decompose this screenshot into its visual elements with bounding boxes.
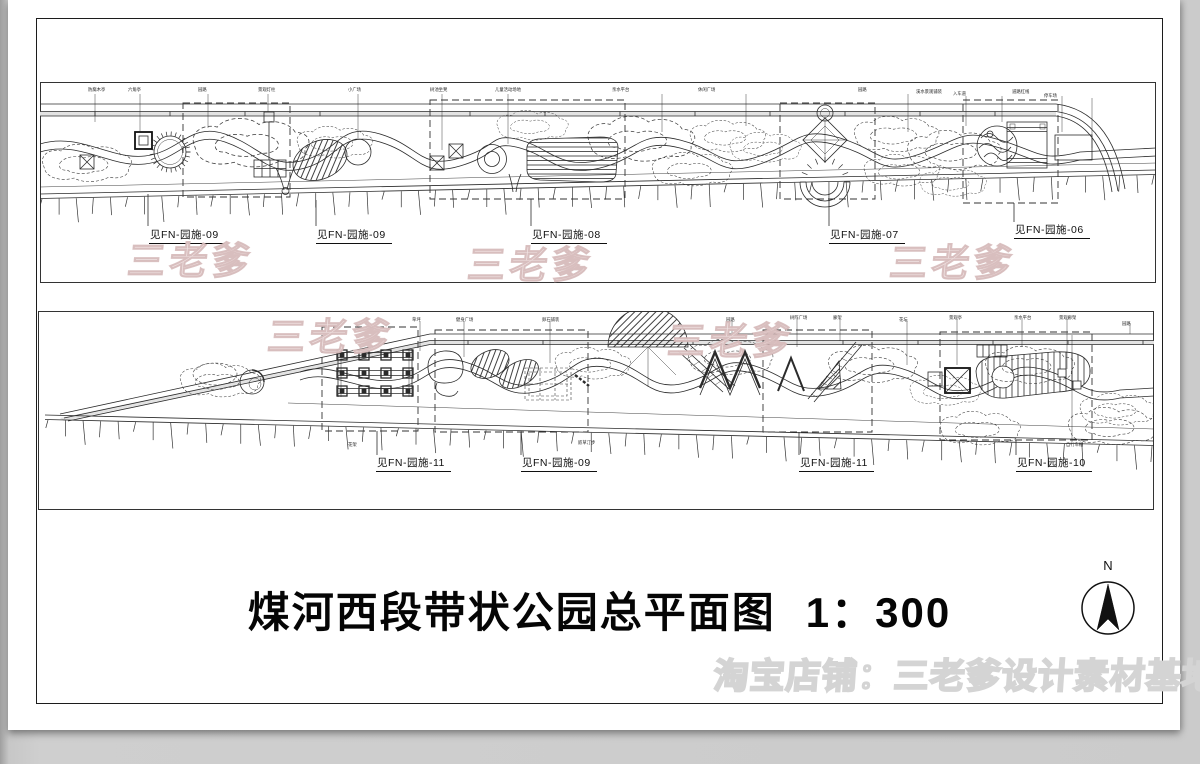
callout-label: 见FN-园施-09 xyxy=(521,455,597,472)
tiny-feature-label: 休闲广场 xyxy=(698,86,715,92)
tiny-feature-label: 入车道 xyxy=(953,90,966,96)
tiny-feature-label: 花坛 xyxy=(899,316,908,322)
tiny-feature-label: 道路红线 xyxy=(1012,88,1029,94)
callout-label: 见FN-园施-11 xyxy=(799,455,874,472)
callout-label: 见FN-园施-10 xyxy=(1016,455,1092,472)
page-title: 煤河西段带状公园总平面图 xyxy=(248,589,776,636)
tiny-feature-label: 嵌草汀步 xyxy=(578,439,595,445)
tiny-feature-label: 树池坐凳 xyxy=(430,86,447,92)
watermark-brand: 三老爹 xyxy=(125,230,257,285)
tiny-feature-label: 园路 xyxy=(198,86,207,92)
tiny-feature-label: 防腐木亭 xyxy=(88,86,105,92)
watermark-brand: 三老爹 xyxy=(265,306,397,361)
bottom-plan-drawing xyxy=(38,311,1154,510)
tiny-feature-label: 园路 xyxy=(858,86,867,92)
watermark-brand: 三老爹 xyxy=(665,310,797,365)
drawing-scale: 1：300 xyxy=(806,589,951,636)
tiny-feature-label: 草坪 xyxy=(412,316,421,322)
top-callout-leaders xyxy=(148,194,1014,226)
watermark-brand: 三老爹 xyxy=(465,234,597,289)
scanned-drawing-page: 见FN-园施-09 见FN-园施-09 见FN-园施-08 见FN-园施-07 … xyxy=(0,0,1200,764)
tiny-feature-label: 卵石铺装 xyxy=(542,316,559,322)
bottom-riverbank xyxy=(45,403,1154,470)
callout-label: 见FN-园施-06 xyxy=(1014,222,1090,239)
tiny-feature-label: 廊架 xyxy=(833,314,842,320)
top-features xyxy=(80,105,1092,207)
tiny-feature-label: 停车场 xyxy=(1044,92,1057,98)
callout-label: 见FN-园施-11 xyxy=(376,455,451,472)
north-label: N xyxy=(1096,558,1120,573)
north-needle-icon xyxy=(1097,584,1119,630)
watermark-brand: 三老爹 xyxy=(887,232,1019,287)
watermark-shop: 淘宝店铺：三老爹设计素材基地 xyxy=(712,648,1200,699)
tiny-feature-label: 健身广场 xyxy=(456,316,473,322)
tiny-feature-label: 儿童活动场地 xyxy=(495,86,521,92)
callout-label: 见FN-园施-09 xyxy=(316,227,392,244)
tiny-feature-label: 亲水平台 xyxy=(612,86,629,92)
tiny-feature-label: 溪水景观铺装 xyxy=(916,88,942,94)
tiny-feature-label: 景观廊架 xyxy=(1059,314,1076,320)
tiny-feature-label: 亲水平台 xyxy=(1014,314,1031,320)
tiny-feature-label: 景观灯柱 xyxy=(258,86,275,92)
tiny-feature-label: 自行车棚 xyxy=(1066,441,1083,447)
tiny-feature-label: 六角亭 xyxy=(128,86,141,92)
tiny-feature-label: 景观亭 xyxy=(949,314,962,320)
drawing-title-block: 煤河西段带状公园总平面图1：300 xyxy=(36,579,1163,640)
tiny-feature-label: 小广场 xyxy=(348,86,361,92)
tiny-feature-label: 花架 xyxy=(348,441,357,447)
tiny-feature-label: 园路 xyxy=(1122,320,1131,326)
north-arrow xyxy=(1076,572,1140,642)
